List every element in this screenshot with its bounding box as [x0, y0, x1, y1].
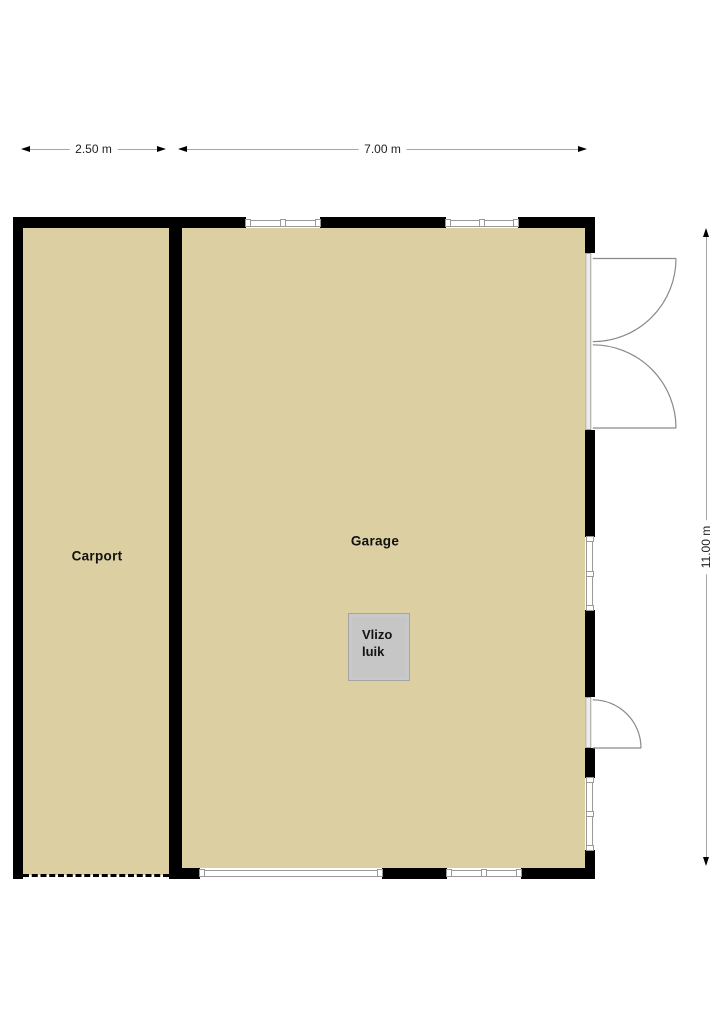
- wall-top-b: [320, 217, 446, 228]
- wall-top-c: [518, 217, 595, 228]
- wall-divider: [169, 217, 182, 879]
- wall-left: [13, 217, 23, 879]
- door-arc-icon: [593, 345, 676, 428]
- window-mullion: [586, 536, 594, 542]
- window-top-2: [446, 220, 518, 227]
- window-mullion: [586, 811, 594, 817]
- window-mullion: [586, 605, 594, 611]
- arrow-right-icon: [578, 146, 587, 152]
- door-arc-icon: [593, 700, 641, 748]
- garage-label: Garage: [351, 534, 399, 549]
- wall-right-b: [585, 430, 595, 537]
- window-mullion: [479, 219, 485, 227]
- attic-hatch-label: Vlizo luik: [362, 627, 402, 660]
- window-mullion: [481, 869, 487, 877]
- wall-bottom-c: [521, 868, 595, 879]
- window-mullion: [586, 777, 594, 783]
- window-mullion: [513, 219, 519, 227]
- floorplan-canvas: 2.50 m 7.00 m 11.00 m: [0, 0, 724, 1024]
- carport-label: Carport: [72, 549, 123, 564]
- garage-door-bottom: [200, 870, 382, 877]
- window-mullion: [586, 571, 594, 577]
- carport-open-edge: [23, 874, 169, 877]
- window-mullion: [280, 219, 286, 227]
- window-right-1: [586, 537, 593, 610]
- arrow-left-icon: [178, 146, 187, 152]
- dimension-label-garage-width: 7.00 m: [358, 142, 407, 156]
- wall-bottom-b: [382, 868, 447, 879]
- window-bottom-2: [447, 870, 521, 877]
- window-mullion: [445, 219, 451, 227]
- window-mullion: [586, 845, 594, 851]
- arrow-down-icon: [703, 857, 709, 866]
- window-mullion: [377, 869, 383, 877]
- window-mullion: [245, 219, 251, 227]
- wall-top-a: [13, 217, 246, 228]
- dimension-carport-width: 2.50 m: [21, 142, 166, 156]
- single-door-threshold: [586, 698, 591, 748]
- window-top-1: [246, 220, 320, 227]
- wall-right-c: [585, 610, 595, 697]
- wall-right-d: [585, 748, 595, 778]
- door-arc-icon: [593, 259, 676, 342]
- dimension-depth: 11.00 m: [699, 228, 713, 866]
- arrow-left-icon: [21, 146, 30, 152]
- dimension-label-depth: 11.00 m: [699, 520, 713, 574]
- dimension-garage-width: 7.00 m: [178, 142, 587, 156]
- arrow-up-icon: [703, 228, 709, 237]
- wall-bottom-a: [169, 868, 200, 879]
- window-mullion: [516, 869, 522, 877]
- dimension-label-carport-width: 2.50 m: [69, 142, 118, 156]
- double-door-threshold: [586, 254, 591, 430]
- window-mullion: [199, 869, 205, 877]
- window-mullion: [446, 869, 452, 877]
- wall-right-a: [585, 217, 595, 253]
- arrow-right-icon: [157, 146, 166, 152]
- window-mullion: [315, 219, 321, 227]
- window-right-2: [586, 778, 593, 850]
- attic-hatch: Vlizo luik: [349, 614, 409, 680]
